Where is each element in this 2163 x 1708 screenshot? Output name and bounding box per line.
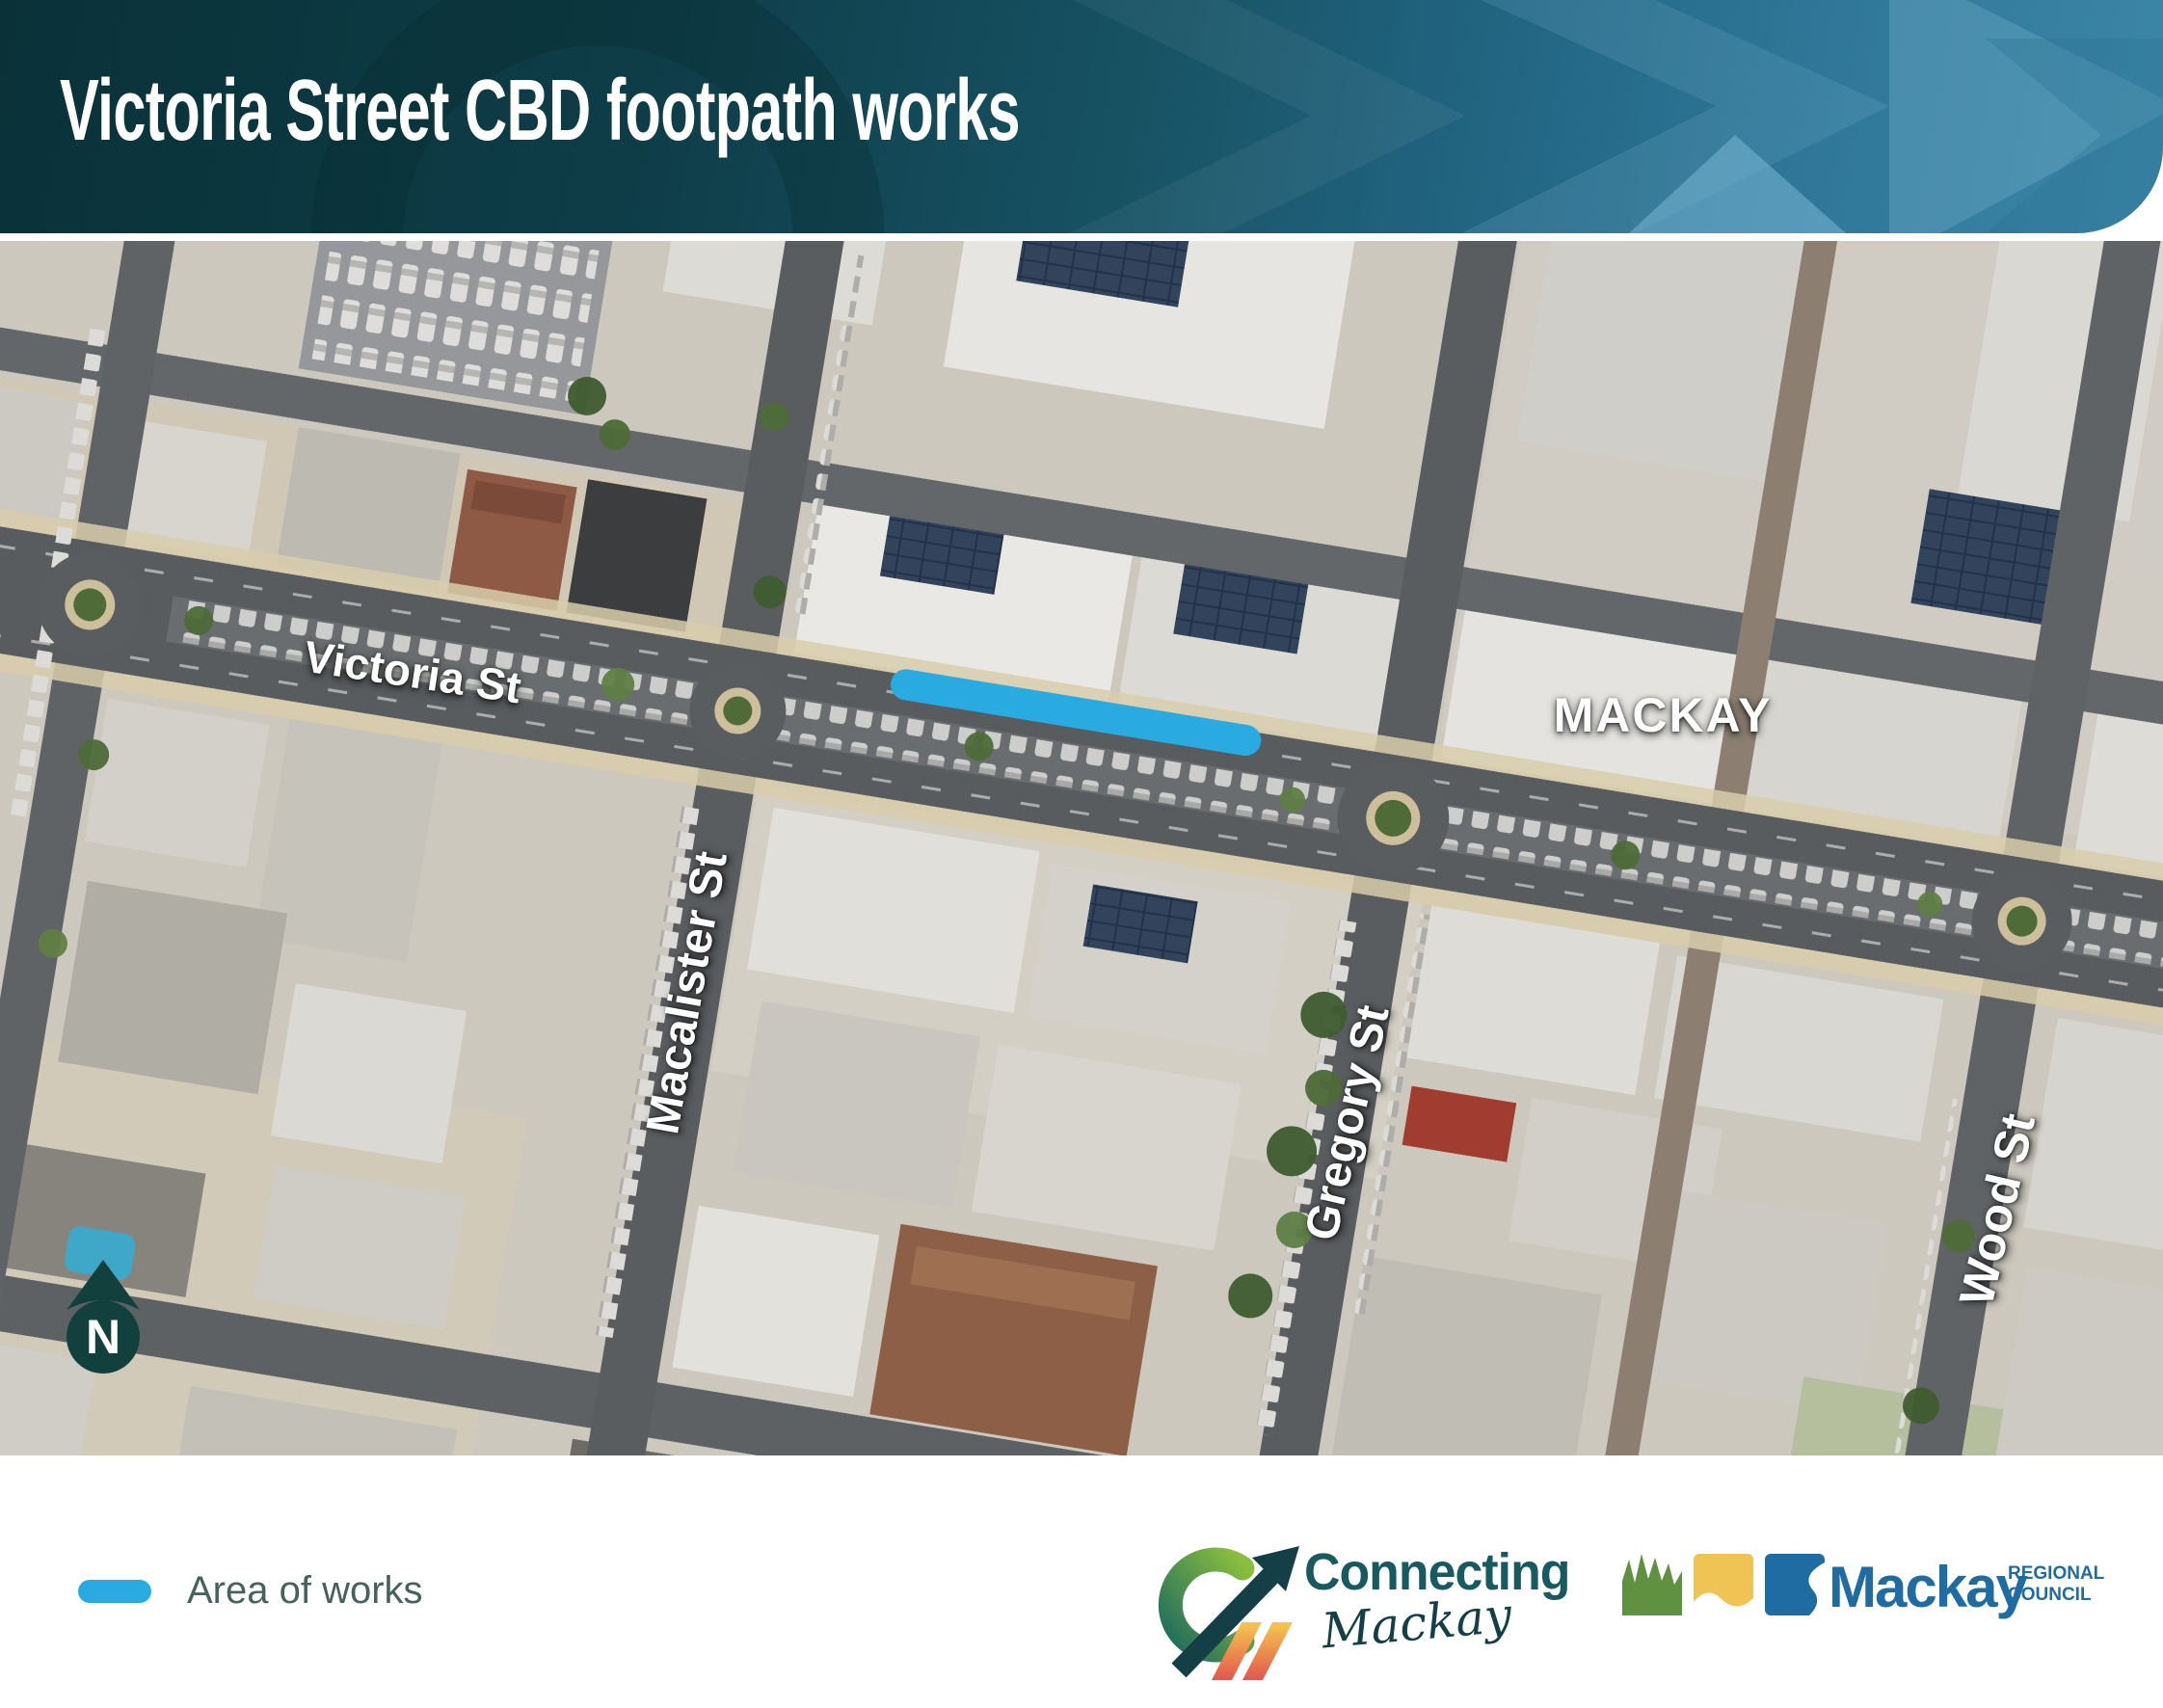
council-tiles-icon xyxy=(1622,1552,1827,1615)
council-subtext-regional: REGIONAL xyxy=(2008,1563,2104,1585)
city-label-mackay: MACKAY xyxy=(1554,687,1773,743)
council-subtext: REGIONAL COUNCIL xyxy=(2008,1563,2104,1606)
north-letter: N xyxy=(86,1310,120,1364)
aerial-map: Victoria St MACKAY Macalister St Gregory… xyxy=(0,241,2163,1455)
footer: Area of works Connecting Mackay xyxy=(0,1455,2163,1708)
council-wordmark: Mackay xyxy=(1829,1554,2026,1620)
connecting-mackay-mark-icon xyxy=(1150,1528,1323,1696)
header-banner: Victoria Street CBD footpath works xyxy=(0,0,2163,233)
connecting-mackay-logo: Connecting Mackay xyxy=(1150,1528,1564,1696)
legend-label: Area of works xyxy=(187,1569,423,1613)
legend: Area of works xyxy=(77,1569,423,1613)
page-title: Victoria Street CBD footpath works xyxy=(60,62,1020,161)
area-of-works-swatch xyxy=(77,1579,152,1604)
mackay-regional-council-logo: Mackay REGIONAL COUNCIL xyxy=(1622,1552,2123,1629)
flyer-page: { "header": { "title": "Victoria Street … xyxy=(0,0,2163,1708)
north-arrow-icon: N xyxy=(53,1258,153,1377)
aerial-imagery xyxy=(0,241,2163,1455)
council-subtext-council: COUNCIL xyxy=(2008,1585,2104,1606)
